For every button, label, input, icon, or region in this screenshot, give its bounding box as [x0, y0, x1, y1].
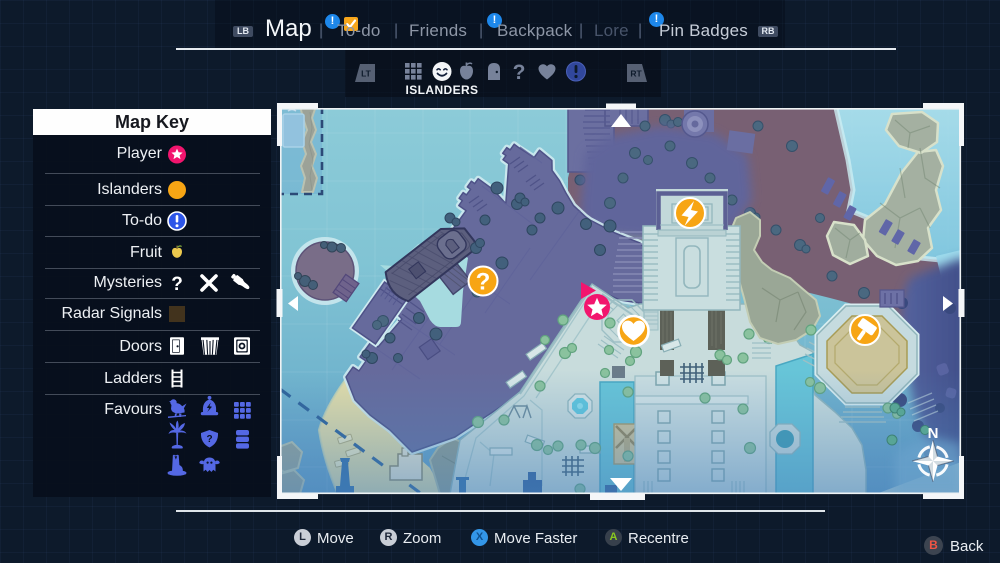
svg-text:?: ? — [476, 269, 491, 296]
svg-text:?: ? — [171, 274, 183, 295]
svg-text:LT: LT — [361, 69, 372, 79]
svg-text:?: ? — [206, 434, 212, 445]
svg-text:N: N — [928, 425, 939, 442]
svg-text:?: ? — [513, 61, 526, 84]
svg-text:RT: RT — [630, 69, 642, 79]
